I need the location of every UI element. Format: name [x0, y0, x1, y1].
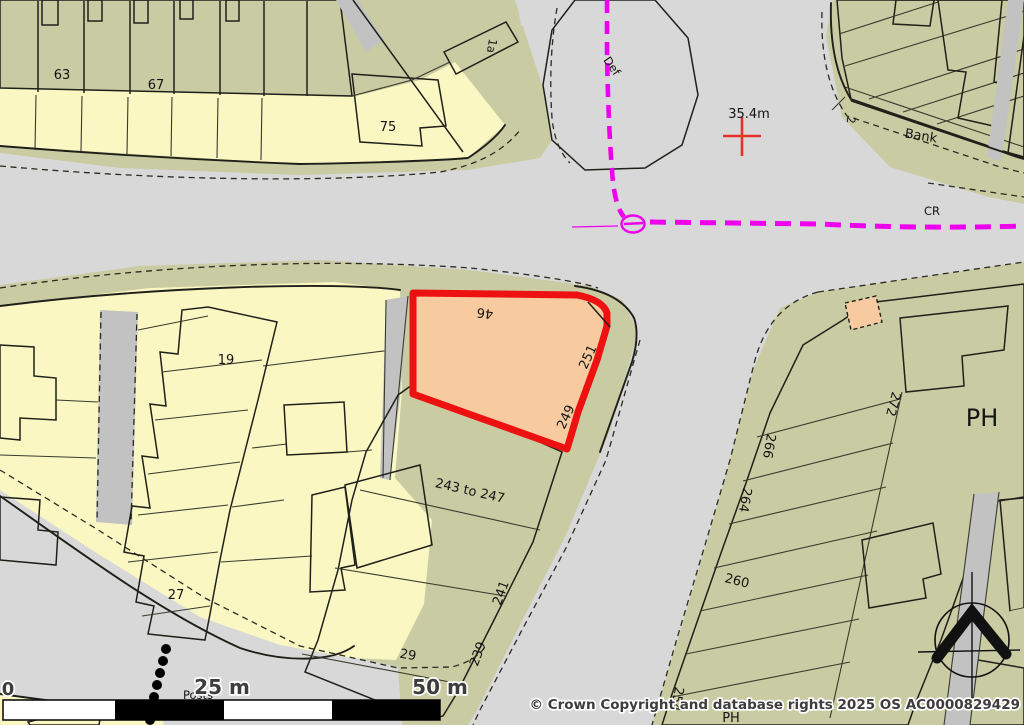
label-46: 46 [476, 304, 494, 321]
label-1a: 1a [484, 38, 500, 55]
label-19: 19 [218, 353, 235, 368]
label-29: 29 [398, 647, 417, 665]
label-cr: CR [924, 204, 940, 218]
label-63: 63 [54, 68, 71, 83]
label-27: 27 [168, 588, 185, 603]
scale-label-25: 25 m [194, 675, 250, 699]
os-map: 63 67 75 1a Def 35.4m Bank 2 CR 46 251 2… [0, 0, 1024, 725]
label-ph-small: PH [722, 711, 740, 725]
label-ph: PH [966, 404, 999, 432]
map-canvas[interactable]: 63 67 75 1a Def 35.4m Bank 2 CR 46 251 2… [0, 0, 1024, 725]
label-spot-height: 35.4m [728, 107, 770, 122]
label-67: 67 [148, 78, 165, 93]
copyright-notice: © Crown Copyright and database rights 20… [530, 697, 1020, 713]
label-2: 2 [844, 116, 859, 125]
scale-label-50: 50 m [412, 675, 468, 699]
scale-label-0: 0 [2, 679, 15, 700]
label-75: 75 [380, 120, 397, 135]
